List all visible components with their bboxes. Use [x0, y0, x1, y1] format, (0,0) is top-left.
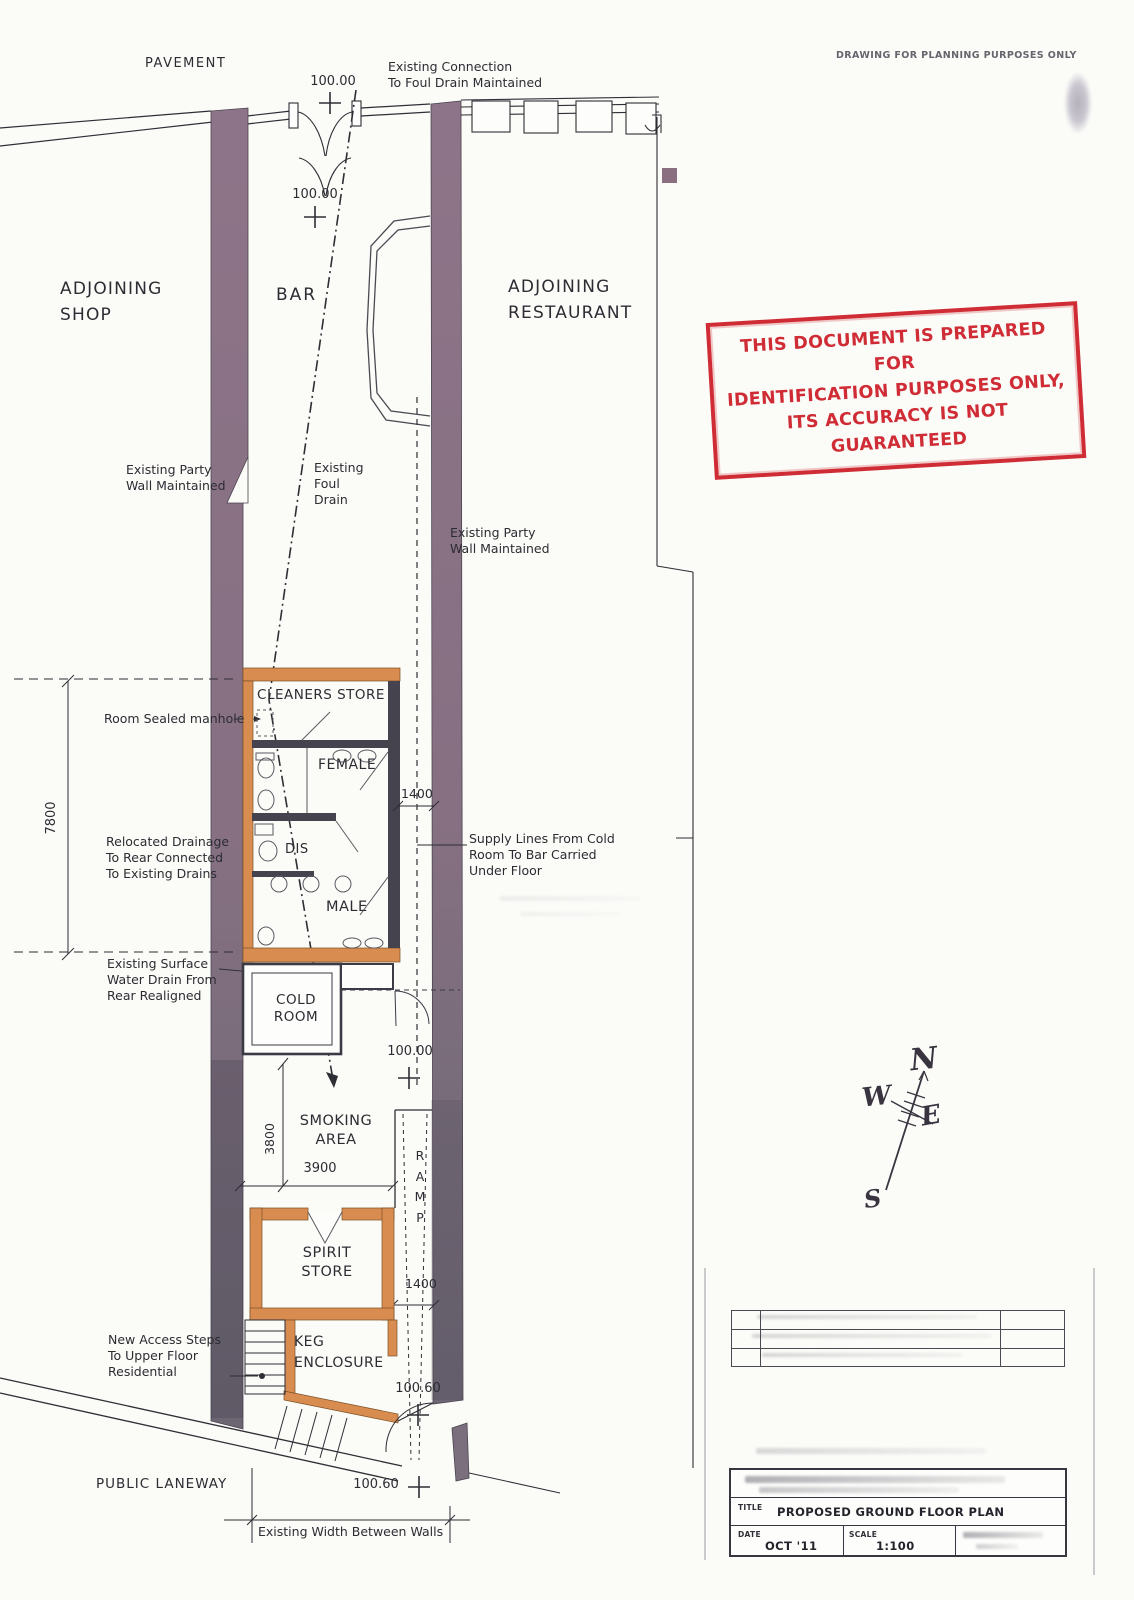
- cold-room-label: COLD ROOM: [260, 992, 332, 1027]
- scan-smudge: [757, 1315, 977, 1319]
- title-block-divider: [731, 1525, 1065, 1526]
- party-wall-right-note: Existing Party Wall Maintained: [450, 525, 550, 557]
- cleaners-store-label: CLEANERS STORE: [250, 687, 392, 704]
- foul-drain-note: Existing Foul Drain: [314, 460, 364, 508]
- scan-smudge: [520, 912, 620, 916]
- title-cell-label: TITLE: [738, 1503, 762, 1512]
- level-yard: 100.00: [384, 1044, 436, 1061]
- toilet-block: [243, 668, 400, 962]
- bar-label: BAR: [276, 282, 317, 308]
- scan-smudge: [976, 1544, 1018, 1549]
- scan-smudge: [745, 1476, 1005, 1483]
- title-block: TITLE PROPOSED GROUND FLOOR PLAN DATE OC…: [729, 1468, 1067, 1557]
- ramp-label: R A M P: [412, 1146, 428, 1229]
- level-keg: 100.60: [392, 1381, 444, 1398]
- laneway-lines: [0, 1378, 560, 1493]
- title-block-divider: [843, 1525, 844, 1555]
- existing-width-note: Existing Width Between Walls: [258, 1524, 443, 1540]
- adjoining-restaurant-label: ADJOINING RESTAURANT: [508, 274, 632, 327]
- title-block-divider: [955, 1525, 956, 1555]
- scan-smudge: [756, 1448, 986, 1454]
- entrance-door: [289, 101, 361, 196]
- public-laneway-label: PUBLIC LANEWAY: [96, 1476, 227, 1493]
- scale-cell-label: SCALE: [849, 1530, 877, 1539]
- dim-7800-label: 7800: [44, 796, 60, 840]
- restaurant-wall-block: [662, 168, 677, 183]
- level-street: 100.00: [307, 74, 359, 91]
- drawing-title: PROPOSED GROUND FLOOR PLAN: [777, 1505, 1004, 1519]
- revision-col-divider: [1000, 1311, 1001, 1366]
- dim-3900-label: 3900: [298, 1161, 342, 1178]
- dim-1400-top-label: 1400: [401, 786, 433, 802]
- planning-note: DRAWING FOR PLANNING PURPOSES ONLY: [836, 50, 1086, 61]
- title-block-divider: [731, 1497, 1065, 1498]
- party-wall-left-note: Existing Party Wall Maintained: [126, 462, 226, 494]
- supply-lines-note: Supply Lines From Cold Room To Bar Carri…: [469, 831, 615, 879]
- drawing-scale: 1:100: [876, 1539, 915, 1553]
- identification-stamp: THIS DOCUMENT IS PREPARED FOR IDENTIFICA…: [706, 301, 1087, 480]
- pavement-label: PAVEMENT: [145, 56, 226, 73]
- level-laneway: 100.60: [350, 1477, 402, 1494]
- male-label: MALE: [326, 898, 368, 917]
- new-access-steps-note: New Access Steps To Upper Floor Resident…: [108, 1332, 221, 1380]
- room-sealed-manhole-note: Room Sealed manhole: [104, 711, 244, 727]
- female-label: FEMALE: [318, 757, 376, 775]
- dis-label: DIS: [285, 842, 309, 859]
- compass-west: W: [861, 1081, 893, 1114]
- revision-table: [731, 1310, 1065, 1367]
- surface-water-note: Existing Surface Water Drain From Rear R…: [107, 956, 217, 1004]
- revision-col-divider: [760, 1311, 761, 1366]
- bar-counter: [367, 216, 430, 426]
- adjoining-shop-label: ADJOINING SHOP: [60, 276, 163, 329]
- floor-plan-sheet: PAVEMENT DRAWING FOR PLANNING PURPOSES O…: [0, 0, 1134, 1600]
- scan-smudge: [500, 896, 640, 901]
- scan-smudge: [963, 1532, 1043, 1538]
- drawing-date: OCT '11: [765, 1539, 817, 1553]
- existing-connection-note: Existing Connection To Foul Drain Mainta…: [388, 59, 542, 91]
- revision-row-divider: [732, 1348, 1064, 1349]
- scan-smudge: [762, 1353, 962, 1357]
- smoking-area-label: SMOKING AREA: [294, 1112, 378, 1149]
- scan-smudge: [759, 1487, 959, 1493]
- relocated-drainage-note: Relocated Drainage To Rear Connected To …: [106, 834, 229, 882]
- dim-1400-bottom-label: 1400: [405, 1276, 437, 1292]
- compass-north: N: [908, 1041, 939, 1079]
- foul-drain-line: [269, 90, 356, 1088]
- scan-blob: [1064, 72, 1092, 134]
- spirit-store-label: SPIRIT STORE: [283, 1244, 371, 1281]
- revision-row-divider: [732, 1329, 1064, 1330]
- date-cell-label: DATE: [738, 1530, 761, 1539]
- wall-stub-bottom: [452, 1423, 469, 1481]
- keg-enclosure-label: KEG ENCLOSURE: [294, 1332, 384, 1374]
- scan-smudge: [752, 1334, 992, 1338]
- level-bar-front: 100.00: [289, 187, 341, 204]
- dim-3800-label: 3800: [262, 1117, 278, 1161]
